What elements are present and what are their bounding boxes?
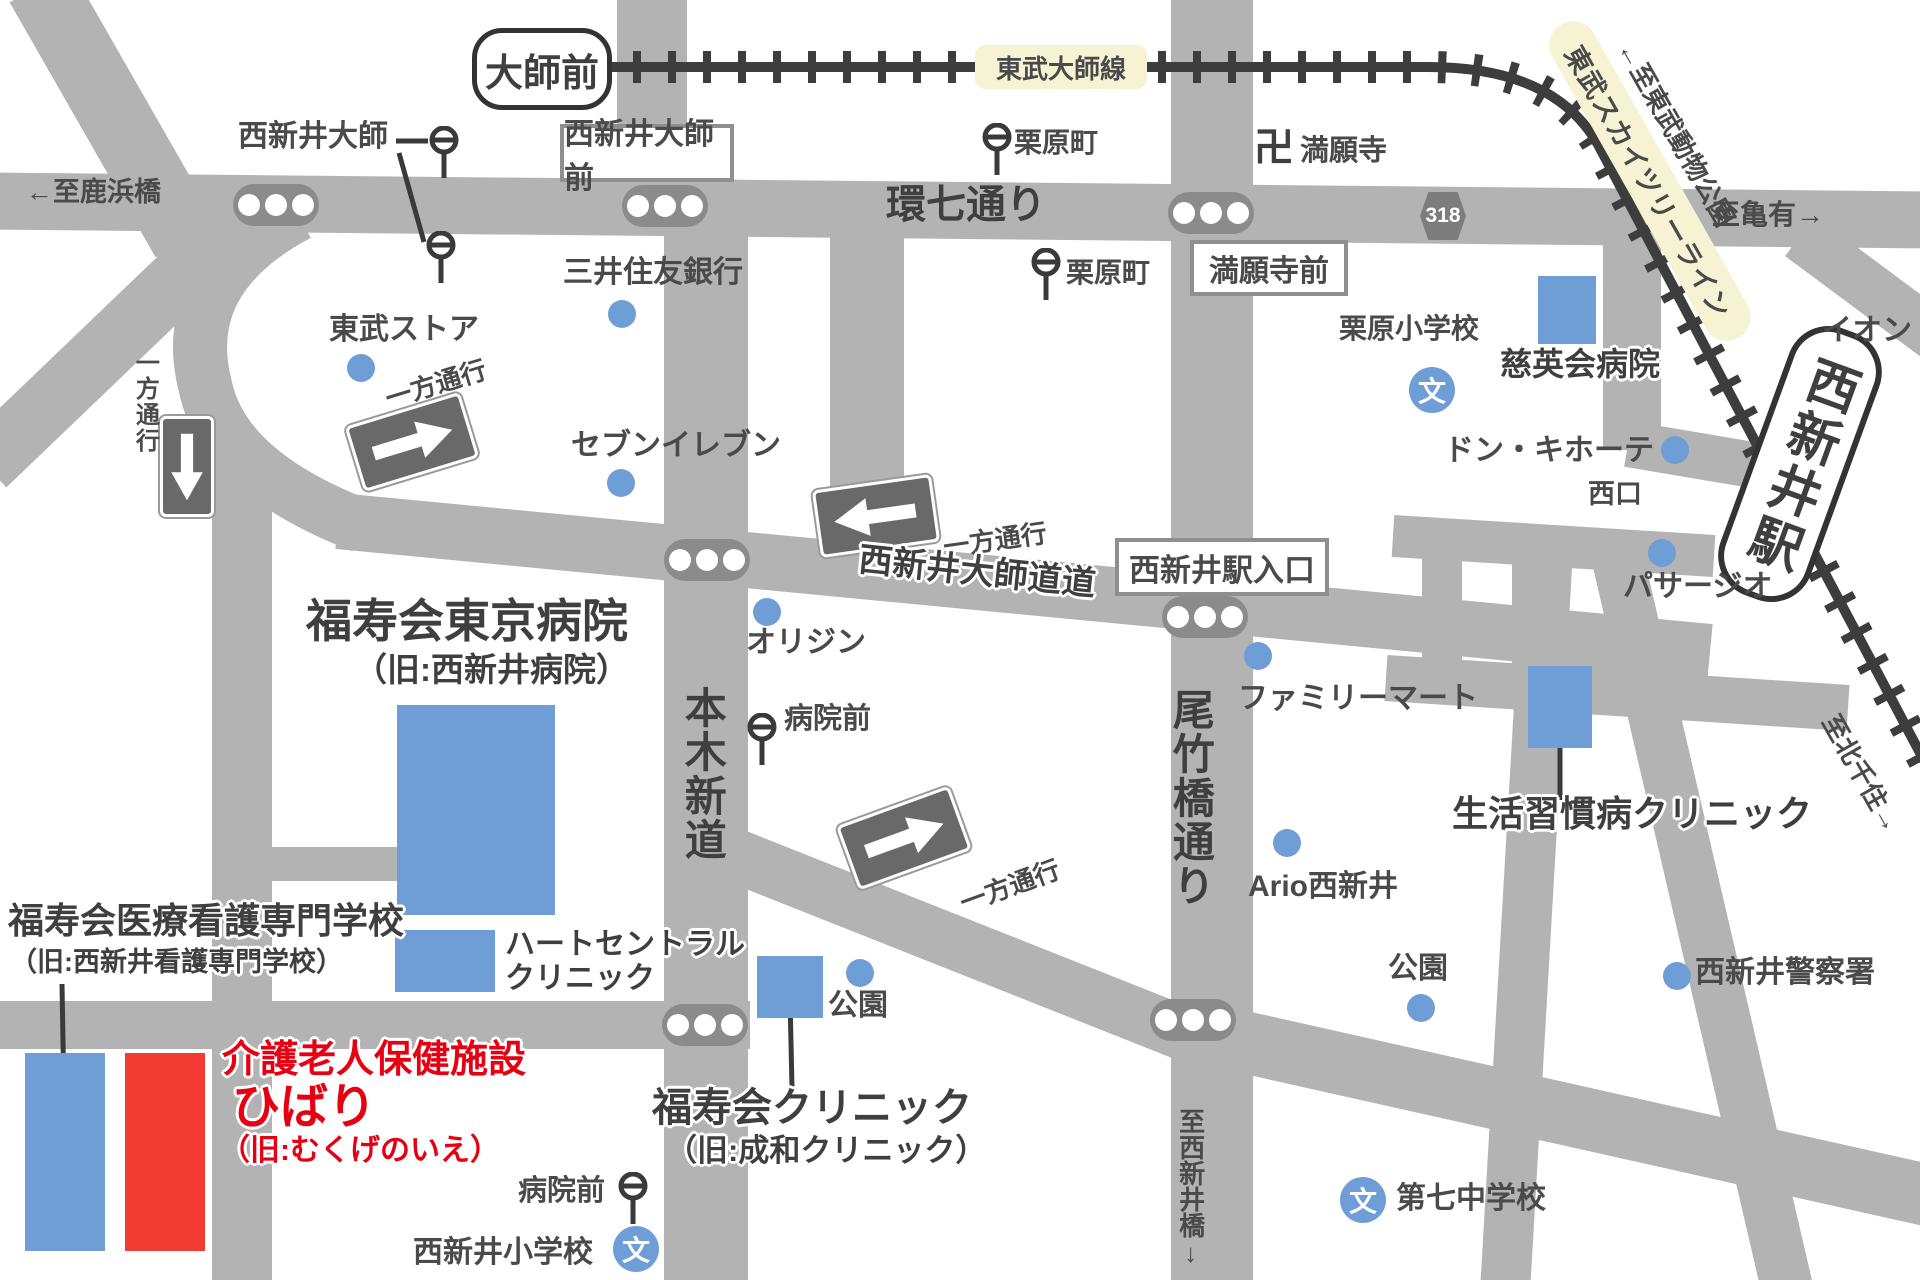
busstop-label-byoin-bottom: 病院前 — [518, 1176, 605, 1208]
station-exit-nishiguchi: 西口 — [1588, 480, 1642, 510]
direction-to-kameari: 至亀有→ — [1712, 200, 1824, 231]
traffic-signal-icon — [664, 539, 750, 581]
place-label-don-quijote: ドン・キホーテ — [1444, 434, 1654, 467]
place-label-smbc: 三井住友銀行 — [563, 256, 743, 289]
place-label-daishichi-jhs: 第七中学校 — [1396, 1182, 1546, 1215]
bus-stop-icon — [981, 123, 1013, 179]
temple-icon: 卍 — [1254, 126, 1294, 170]
road-label-kannana: 環七通り — [886, 183, 1046, 227]
road-label-otakebashi: 尾竹橋通り — [1167, 688, 1213, 908]
direction-to-shikahama: ←至鹿浜橋 — [26, 178, 161, 208]
poi-dot-origin — [753, 598, 781, 626]
place-label-family-mart: ファミリーマート — [1238, 682, 1478, 715]
building-fukujukai-clinic — [757, 956, 823, 1018]
bus-stop-icon — [1030, 248, 1062, 304]
bus-stop-icon — [425, 231, 457, 287]
poi-dot-police — [1663, 962, 1691, 990]
poi-dot-tobu-store — [347, 354, 375, 382]
place-label-tobu-store: 東武ストア — [329, 313, 479, 346]
building-heart-central-clinic — [395, 930, 495, 992]
bus-stop-icon — [428, 126, 460, 182]
direction-to-nishiaraibashi: 至西新井橋↓ — [1176, 1108, 1205, 1268]
bus-stop-icon — [746, 713, 778, 769]
facility-label-hibari-name: ひばり — [232, 1082, 376, 1135]
facility-label-nursing-school-former: （旧:西新井看護専門学校） — [10, 948, 343, 978]
building-seikatsu-clinic — [1528, 666, 1592, 748]
traffic-signal-icon — [662, 1004, 748, 1046]
place-label-kurihara-es: 栗原小学校 — [1339, 314, 1479, 345]
place-label-police: 西新井警察署 — [1695, 956, 1875, 989]
facility-label-jieikai: 慈英会病院 — [1500, 347, 1660, 382]
intersection-nishiarai-daishimae: 西新井大師前 — [560, 124, 734, 182]
poi-dot-park-center — [846, 959, 874, 987]
place-label-park-center: 公園 — [828, 989, 888, 1022]
traffic-signal-icon — [233, 184, 319, 226]
school-icon: 文 — [1409, 367, 1455, 413]
building-tokyo-hospital — [397, 705, 555, 915]
place-label-seven-eleven: セブンイレブン — [571, 429, 781, 462]
place-label-passaggio: パサージオ — [1623, 570, 1772, 603]
poi-dot-family-mart — [1244, 642, 1272, 670]
one-way-arrow-icon — [160, 416, 214, 517]
poi-dot-passaggio — [1648, 539, 1676, 567]
route-318-badge: 318 — [1420, 192, 1466, 240]
traffic-signal-icon — [1168, 192, 1254, 234]
facility-label-fukujukai-clinic-former: （旧:成和クリニック） — [666, 1134, 986, 1168]
poi-dot-ario — [1273, 829, 1301, 857]
place-label-park-right: 公園 — [1388, 952, 1448, 985]
traffic-signal-icon — [1162, 596, 1248, 638]
building-jieikai-hospital — [1538, 276, 1596, 344]
bus-stop-icon — [617, 1172, 649, 1228]
road-bottom-right — [1190, 1030, 1920, 1198]
place-label-origin: オリジン — [746, 626, 866, 659]
school-icon: 文 — [1340, 1177, 1386, 1223]
busstop-label-kurihara-top: 栗原町 — [1014, 128, 1098, 159]
poi-dot-smbc — [608, 300, 636, 328]
place-label-nishiarai-es: 西新井小学校 — [413, 1236, 593, 1269]
facility-label-heart-central: ハートセントラルクリニック — [505, 928, 745, 996]
building-nursing-school — [25, 1053, 105, 1251]
place-label-ion: イオン — [1822, 314, 1912, 347]
facility-label-nursing-school: 福寿会医療看護専門学校 — [8, 901, 404, 941]
facility-label-hibari-type: 介護老人保健施設 — [222, 1040, 526, 1082]
poi-dot-park-right — [1407, 994, 1435, 1022]
road-label-motoki: 本木新道 — [679, 686, 725, 862]
poi-dot-seven-eleven — [607, 469, 635, 497]
intersection-mangangi-mae: 満願寺前 — [1190, 240, 1348, 296]
oneway-label-left: 一方通行 — [131, 350, 157, 454]
facility-label-tokyo-hospital: 福寿会東京病院 — [306, 596, 628, 647]
building-hibari — [125, 1053, 205, 1251]
daishi-line-label: 東武大師線 — [975, 45, 1147, 89]
busstop-label-byoin-center: 病院前 — [784, 704, 871, 736]
place-label-manganji: 満願寺 — [1300, 136, 1387, 168]
facility-label-fukujukai-clinic: 福寿会クリニック — [652, 1086, 972, 1130]
facility-label-hibari-former: （旧:むくげのいえ） — [220, 1134, 500, 1167]
busstop-label-kurihara-bottom: 栗原町 — [1066, 258, 1150, 289]
school-icon: 文 — [613, 1226, 659, 1272]
facility-label-tokyo-hospital-former: （旧:西新井病院） — [354, 652, 629, 688]
station-daishimae: 大師前 — [472, 28, 612, 110]
place-label-ario: Ario西新井 — [1248, 870, 1398, 903]
intersection-eki-iriguchi: 西新井駅入口 — [1115, 538, 1329, 596]
traffic-signal-icon — [1150, 999, 1236, 1041]
access-map: 文 文 文 大師前 東武大師線 東武スカイツリーライン ←至東武動物公園 至北千… — [0, 0, 1920, 1280]
facility-label-seikatsu: 生活習慣病クリニック — [1452, 794, 1812, 834]
busstop-label-nishiarai-daishi: 西新井大師 — [238, 120, 388, 153]
poi-dot-don-quijote — [1661, 436, 1689, 464]
